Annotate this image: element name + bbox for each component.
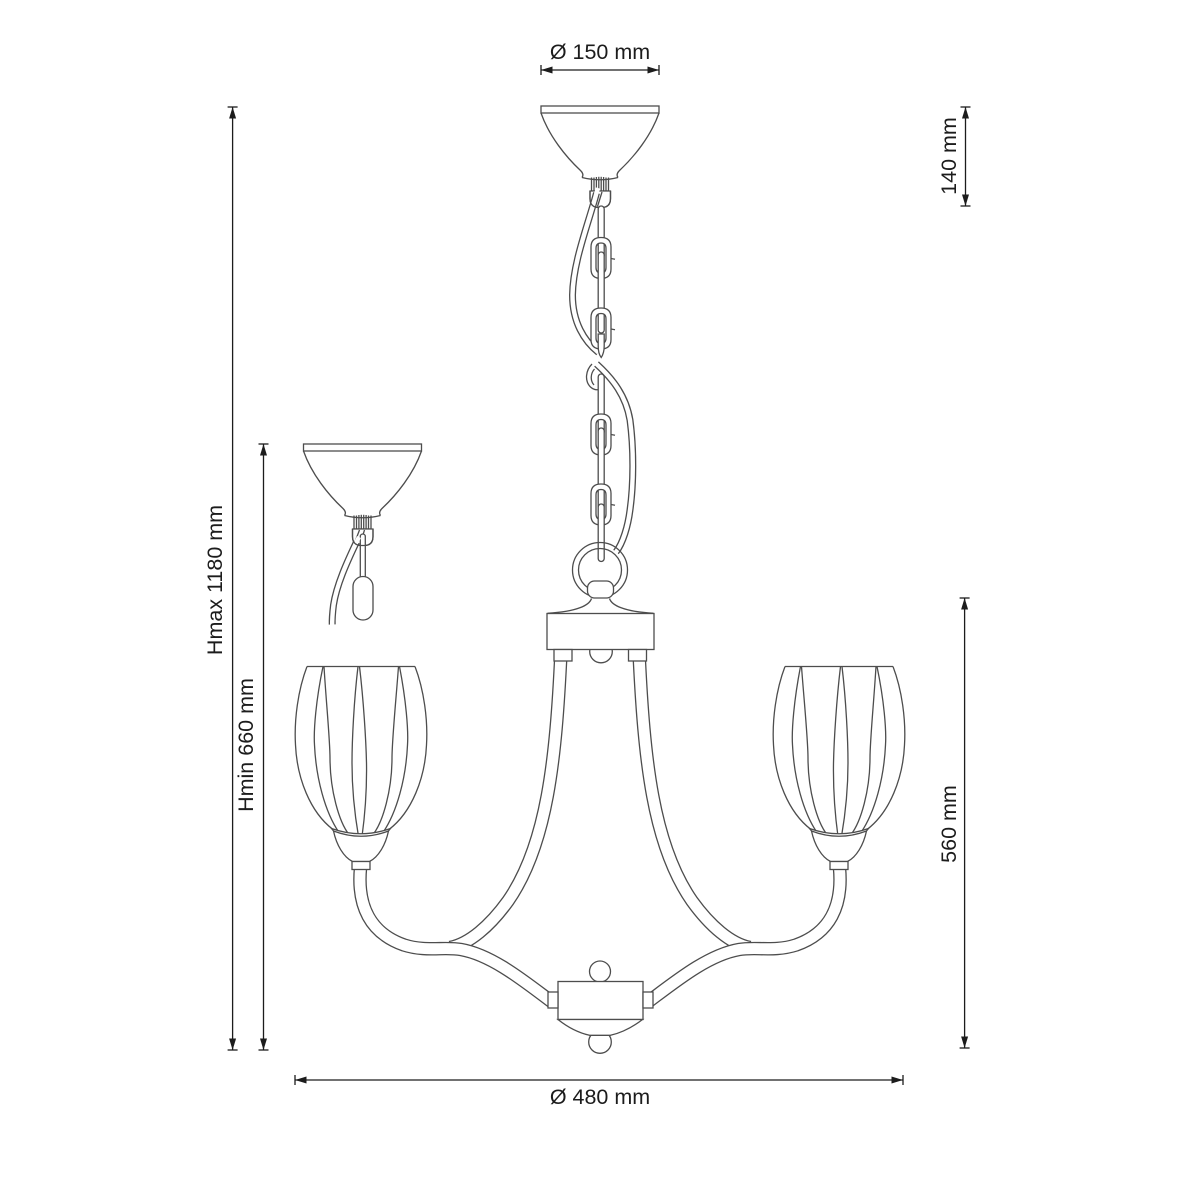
svg-text:Hmax 1180 mm: Hmax 1180 mm xyxy=(203,505,227,655)
svg-text:Hmin 660 mm: Hmin 660 mm xyxy=(234,678,258,812)
svg-text:560 mm: 560 mm xyxy=(937,785,961,863)
svg-text:Ø 480 mm: Ø 480 mm xyxy=(550,1085,650,1109)
svg-text:140 mm: 140 mm xyxy=(937,117,961,195)
svg-text:Ø 150 mm: Ø 150 mm xyxy=(550,40,650,64)
